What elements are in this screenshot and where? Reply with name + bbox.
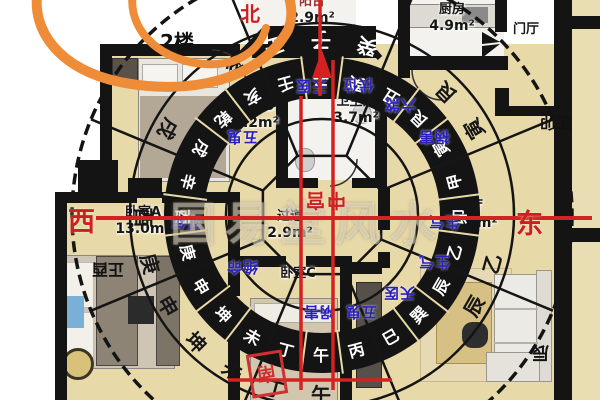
north-arrowhead [312,50,332,78]
fengshui-floorplan-screenshot: 国易堂风水 中宫 南 厨房4.9m²门厅阳台2.9m²卫生间3.7m²卧室B9.… [0,0,600,400]
direction-label: 西 [68,200,95,239]
south-label: 南 [255,359,278,389]
direction-label: 东 [516,202,543,241]
direction-label: 北 [240,0,260,27]
south-marker-box: 南 [246,349,288,398]
